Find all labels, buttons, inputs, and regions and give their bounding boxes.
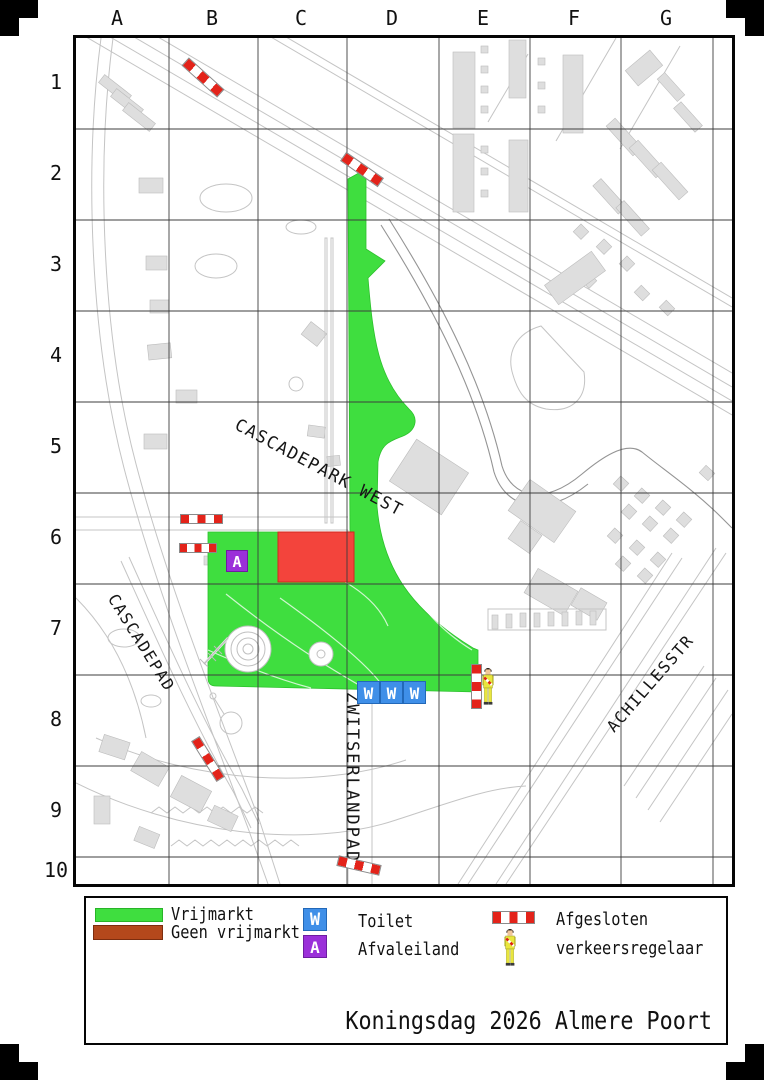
legend-label-verkeersregelaar: verkeersregelaar xyxy=(556,938,703,959)
grid-column-label-g: G xyxy=(660,6,672,30)
grid-row-label-3: 3 xyxy=(44,252,68,276)
grid-row-label-10: 10 xyxy=(44,858,68,882)
legend-icon-verkeersregelaar xyxy=(503,927,517,971)
grid-row-label-8: 8 xyxy=(44,707,68,731)
toilet-marker-3: W xyxy=(403,681,426,704)
legend-swatch-geen-vrijmarkt xyxy=(93,925,163,940)
toilet-marker-1: W xyxy=(357,681,380,704)
toilet-marker-2: W xyxy=(380,681,403,704)
grid-row-label-7: 7 xyxy=(44,616,68,640)
grid-column-label-f: F xyxy=(568,6,580,30)
grid-row-label-2: 2 xyxy=(44,161,68,185)
legend-icon-afgesloten xyxy=(492,911,535,924)
map-graphics xyxy=(76,38,732,884)
barrier-road-closed-b6-upper xyxy=(180,514,223,524)
grid-column-label-a: A xyxy=(111,6,123,30)
grid-row-label-1: 1 xyxy=(44,70,68,94)
legend-icon-afvaleiland: A xyxy=(303,935,327,958)
street-label-zwitserlandpad: ZWITSERLANDPAD xyxy=(342,692,362,863)
map-title: Koningsdag 2026 Almere Poort xyxy=(93,1006,712,1035)
legend-label-toilet: Toilet xyxy=(358,911,413,932)
grid-column-label-b: B xyxy=(206,6,218,30)
koningsdag-map-page: A B C D E F G 1 2 3 4 5 6 7 8 9 10 xyxy=(0,0,764,1080)
traffic-controller-marker xyxy=(481,666,495,710)
grid-row-label-5: 5 xyxy=(44,434,68,458)
legend-label-geen-vrijmarkt: Geen vrijmarkt xyxy=(171,922,300,943)
legend-label-afgesloten: Afgesloten xyxy=(556,909,648,930)
grid-column-label-d: D xyxy=(386,6,398,30)
grid-column-label-c: C xyxy=(295,6,307,30)
grid-row-label-6: 6 xyxy=(44,525,68,549)
map-frame xyxy=(73,35,735,887)
legend-swatch-vrijmarkt xyxy=(95,908,163,922)
grid-row-label-4: 4 xyxy=(44,343,68,367)
grid-row-label-9: 9 xyxy=(44,798,68,822)
barrier-road-closed-b6-lower xyxy=(179,543,217,553)
geen-vrijmarkt-area xyxy=(278,532,354,582)
legend-label-afvaleiland: Afvaleiland xyxy=(358,939,459,960)
legend-icon-toilet: W xyxy=(303,908,327,931)
waste-island-marker: A xyxy=(226,550,248,572)
grid-column-label-e: E xyxy=(477,6,489,30)
